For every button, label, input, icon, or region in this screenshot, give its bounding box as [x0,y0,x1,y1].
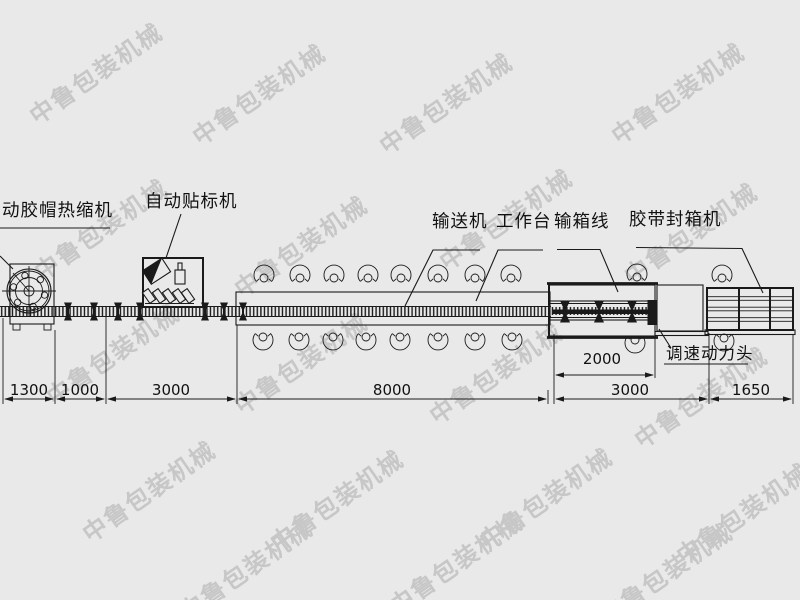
leader-lines [0,214,763,364]
tape-sealer-machine [705,288,795,335]
power-head-block [648,300,657,325]
labeled-bottles [142,289,194,304]
operator-seats-top [254,264,732,282]
production-line-drawing: 中鲁包装机械中鲁包装机械中鲁包装机械中鲁包装机械中鲁包装机械中鲁包装机械中鲁包装… [0,0,800,600]
drawing-layer [0,0,800,600]
shrink-machine [0,256,56,330]
labeling-machine [142,258,203,307]
line-drawing-svg [0,0,800,600]
chain-conveyor [0,307,551,317]
box-conveyor-line [547,284,658,338]
power-roller-section [655,285,708,336]
dimension-lines [3,317,793,404]
